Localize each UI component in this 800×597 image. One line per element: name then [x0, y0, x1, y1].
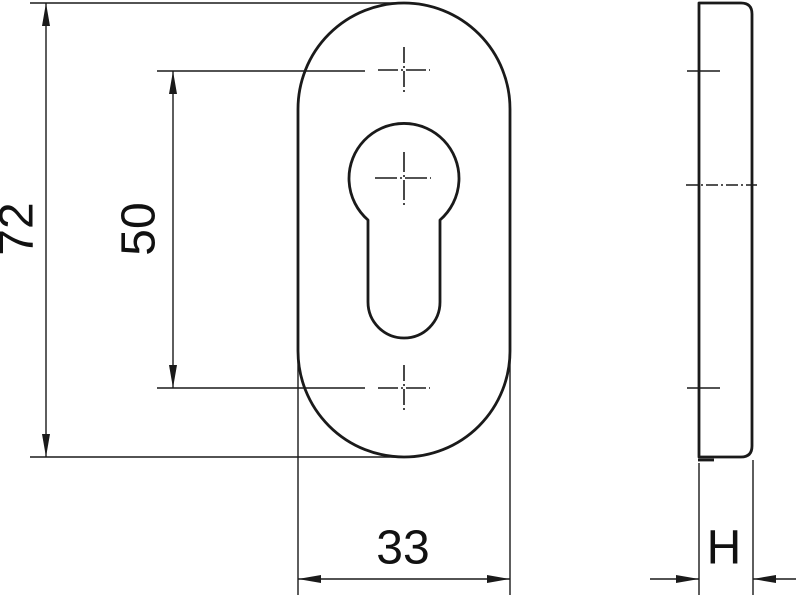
dim-label-thickness: H: [707, 522, 742, 575]
arrow-down-icon: [42, 434, 50, 457]
dim-hole-spacing: 50: [113, 71, 366, 388]
cylinder-center-mark: [375, 152, 431, 205]
drawing-svg: 72 50 33 H: [0, 0, 800, 597]
dim-label-plate-width: 33: [376, 522, 429, 575]
top-hole-center-mark: [378, 47, 430, 95]
arrow-down-icon: [169, 365, 177, 388]
side-view: [686, 3, 757, 460]
arrow-right-icon: [676, 575, 699, 583]
dim-label-overall-height: 72: [0, 202, 44, 255]
arrow-up-icon: [169, 71, 177, 94]
arrow-left-icon: [298, 575, 321, 583]
arrow-right-icon: [487, 575, 510, 583]
arrow-up-icon: [42, 3, 50, 26]
bottom-hole-center-mark: [378, 365, 430, 411]
technical-drawing: 72 50 33 H: [0, 0, 800, 597]
dim-label-hole-spacing: 50: [113, 202, 166, 255]
dim-thickness: H: [650, 460, 796, 595]
arrow-left-icon: [753, 575, 776, 583]
